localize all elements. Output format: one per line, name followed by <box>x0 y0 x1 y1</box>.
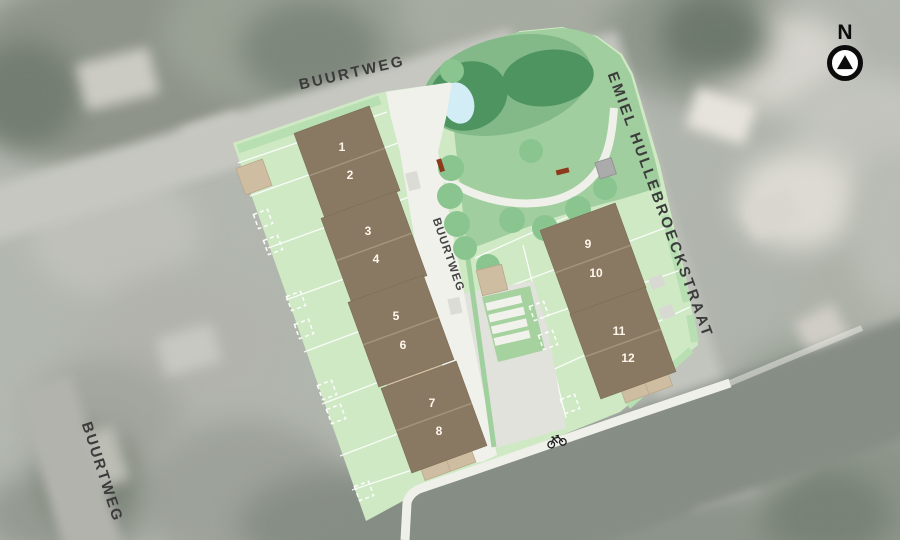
site-plan-map: 1 2 3 4 5 6 7 8 9 10 11 12 BUURTWEG BUUR… <box>0 0 900 540</box>
building-number-12: 12 <box>621 352 634 364</box>
north-arrow-icon <box>827 45 863 81</box>
building-number-3: 3 <box>365 225 372 237</box>
building-number-6: 6 <box>400 339 407 351</box>
building-number-7: 7 <box>429 397 436 409</box>
compass: N <box>827 22 863 81</box>
building-number-10: 10 <box>589 267 602 279</box>
building-number-4: 4 <box>373 253 380 265</box>
cycle-path-continuation <box>730 328 862 383</box>
building-number-8: 8 <box>436 425 443 437</box>
building-number-1: 1 <box>339 141 346 153</box>
compass-n-label: N <box>827 22 863 43</box>
building-number-5: 5 <box>393 310 400 322</box>
building-number-9: 9 <box>585 238 592 250</box>
building-number-11: 11 <box>613 325 626 337</box>
building-number-2: 2 <box>347 169 354 181</box>
